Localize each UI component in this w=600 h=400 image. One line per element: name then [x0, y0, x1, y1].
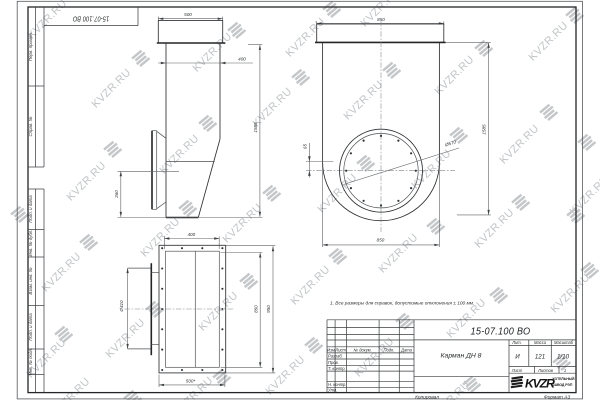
svg-text:Перв. примен.: Перв. примен. [28, 32, 33, 61]
svg-text:Разраб.: Разраб. [328, 354, 343, 359]
svg-text:1: 1 [564, 368, 566, 373]
svg-text:121: 121 [535, 353, 545, 360]
svg-text:Лист: Лист [334, 347, 346, 352]
svg-text:850: 850 [253, 305, 258, 313]
svg-text:Масса: Масса [534, 340, 547, 345]
svg-text:Масштаб: Масштаб [554, 340, 574, 345]
svg-text:Лит.: Лит. [511, 340, 522, 345]
svg-text:1/10: 1/10 [557, 353, 570, 360]
svg-text:1. Все размеры для справок, до: 1. Все размеры для справок, допустимые о… [330, 301, 474, 307]
svg-text:500: 500 [184, 12, 192, 17]
svg-text:Копировал: Копировал [415, 394, 439, 400]
svg-text:Н. контр.: Н. контр. [328, 382, 346, 387]
svg-text:Справ. №: Справ. № [28, 116, 33, 136]
svg-text:65: 65 [303, 144, 308, 150]
svg-text:Подп. и дата: Подп. и дата [28, 195, 33, 223]
svg-text:Карман ДН 8: Карман ДН 8 [441, 352, 482, 359]
svg-text:1585: 1585 [482, 124, 487, 135]
svg-text:KVZR: KVZR [525, 376, 555, 390]
svg-text:Инв. № дубл.: Инв. № дубл. [28, 229, 33, 256]
svg-text:15-07.100 ВО: 15-07.100 ВО [73, 14, 110, 22]
svg-text:№ докум.: № докум. [354, 347, 372, 352]
svg-text:400: 400 [187, 232, 195, 237]
svg-text:ЗАВОД РЭП: ЗАВОД РЭП [553, 383, 573, 387]
svg-text:Ø410: Ø410 [119, 300, 124, 313]
svg-text:950: 950 [266, 305, 271, 313]
svg-text:Инв. № подл.: Инв. № подл. [28, 348, 33, 375]
svg-text:Лист: Лист [511, 368, 523, 373]
svg-text:Т. контр.: Т. контр. [328, 366, 346, 371]
svg-text:Взам. инв. №: Взам. инв. № [28, 267, 33, 294]
svg-text:1585: 1585 [253, 122, 258, 133]
svg-text:850: 850 [377, 238, 385, 243]
svg-text:Пров.: Пров. [328, 360, 339, 365]
svg-text:Утв.: Утв. [328, 388, 337, 393]
svg-text:500*: 500* [186, 379, 196, 384]
svg-text:И: И [515, 353, 520, 360]
svg-text:Подп. и дата: Подп. и дата [28, 313, 33, 341]
svg-text:15-07.100 ВО: 15-07.100 ВО [471, 326, 531, 338]
svg-text:Формат А3: Формат А3 [544, 394, 571, 400]
svg-text:Подп.: Подп. [384, 347, 395, 352]
svg-text:360: 360 [114, 190, 119, 198]
svg-text:Дата: Дата [400, 347, 413, 352]
svg-text:КОТЕЛЬНЫЙ: КОТЕЛЬНЫЙ [553, 377, 575, 381]
svg-text:Изм: Изм [327, 347, 335, 352]
svg-text:Листов: Листов [537, 368, 554, 373]
svg-text:400: 400 [238, 57, 246, 62]
